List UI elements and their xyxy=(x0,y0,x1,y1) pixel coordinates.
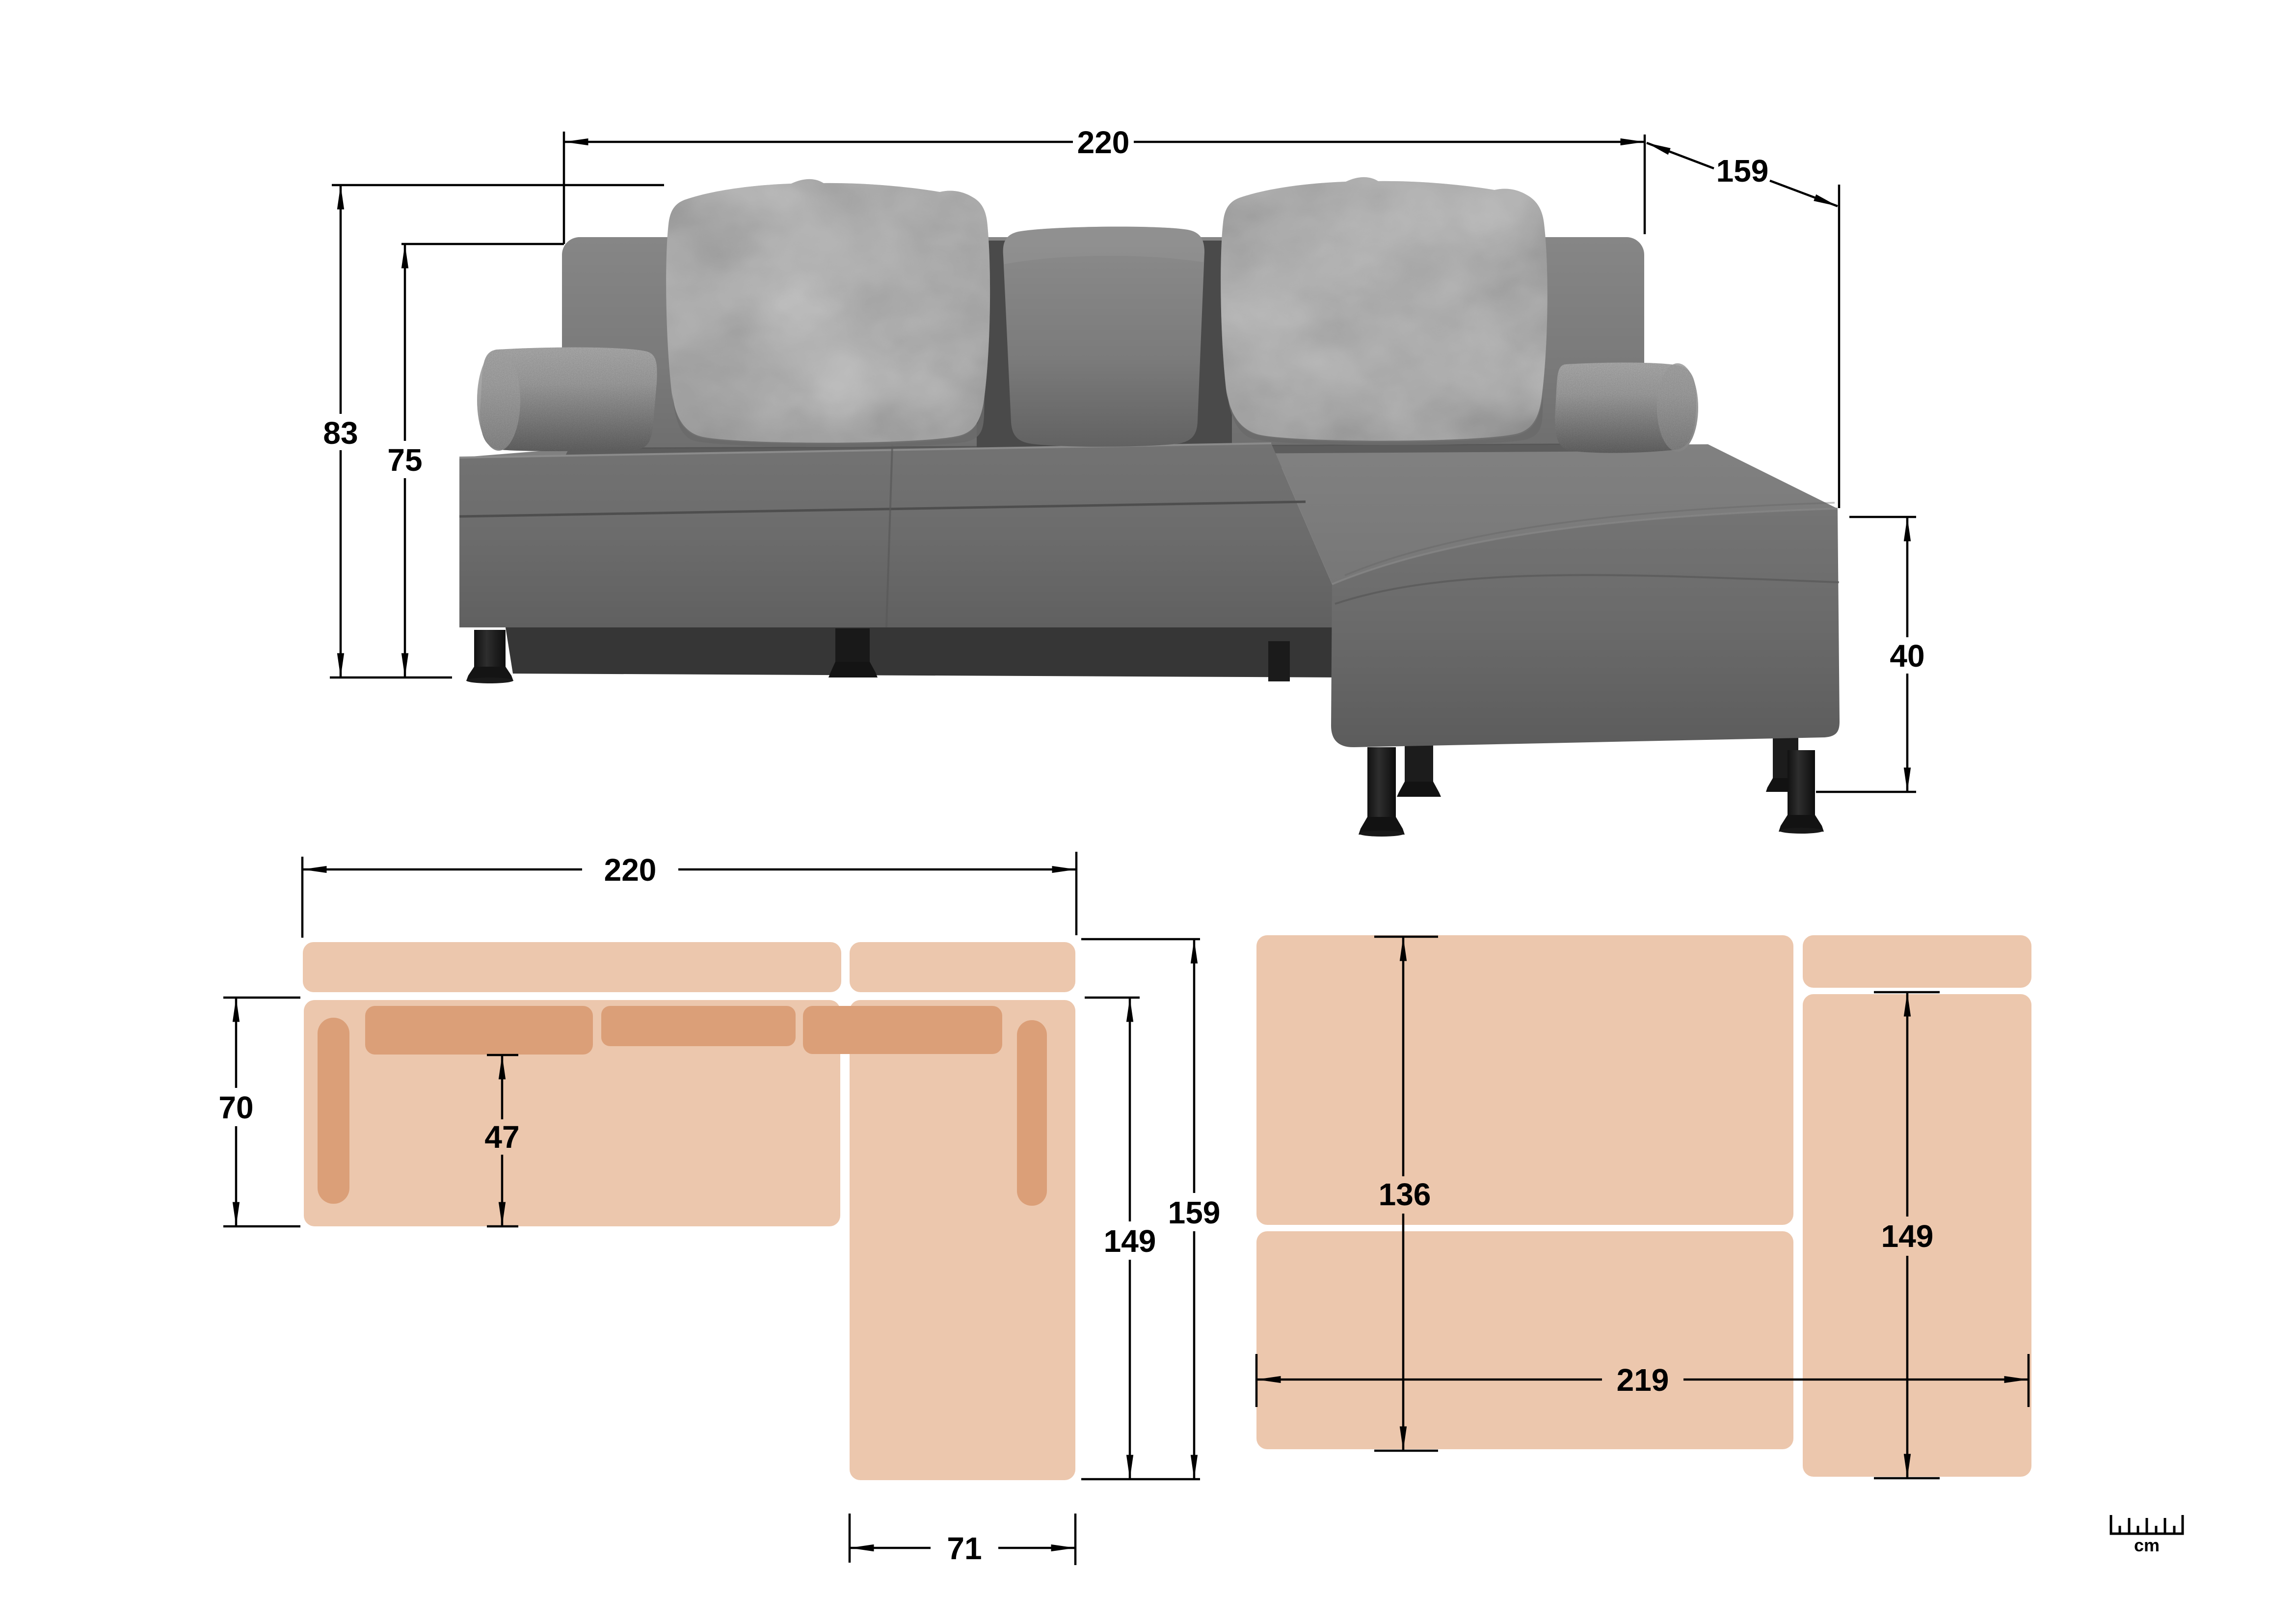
svg-text:71: 71 xyxy=(947,1531,982,1566)
svg-text:149: 149 xyxy=(1104,1223,1156,1259)
svg-text:75: 75 xyxy=(387,442,422,478)
svg-text:cm: cm xyxy=(2134,1535,2160,1555)
svg-text:220: 220 xyxy=(604,852,657,888)
svg-text:149: 149 xyxy=(1881,1218,1934,1254)
svg-text:220: 220 xyxy=(1077,125,1130,160)
svg-text:136: 136 xyxy=(1379,1177,1431,1212)
svg-text:159: 159 xyxy=(1716,153,1769,189)
svg-text:159: 159 xyxy=(1168,1195,1221,1230)
svg-text:70: 70 xyxy=(218,1090,253,1125)
svg-text:83: 83 xyxy=(323,415,358,451)
svg-text:40: 40 xyxy=(1890,638,1924,674)
svg-text:219: 219 xyxy=(1617,1362,1669,1398)
svg-text:47: 47 xyxy=(484,1119,519,1155)
